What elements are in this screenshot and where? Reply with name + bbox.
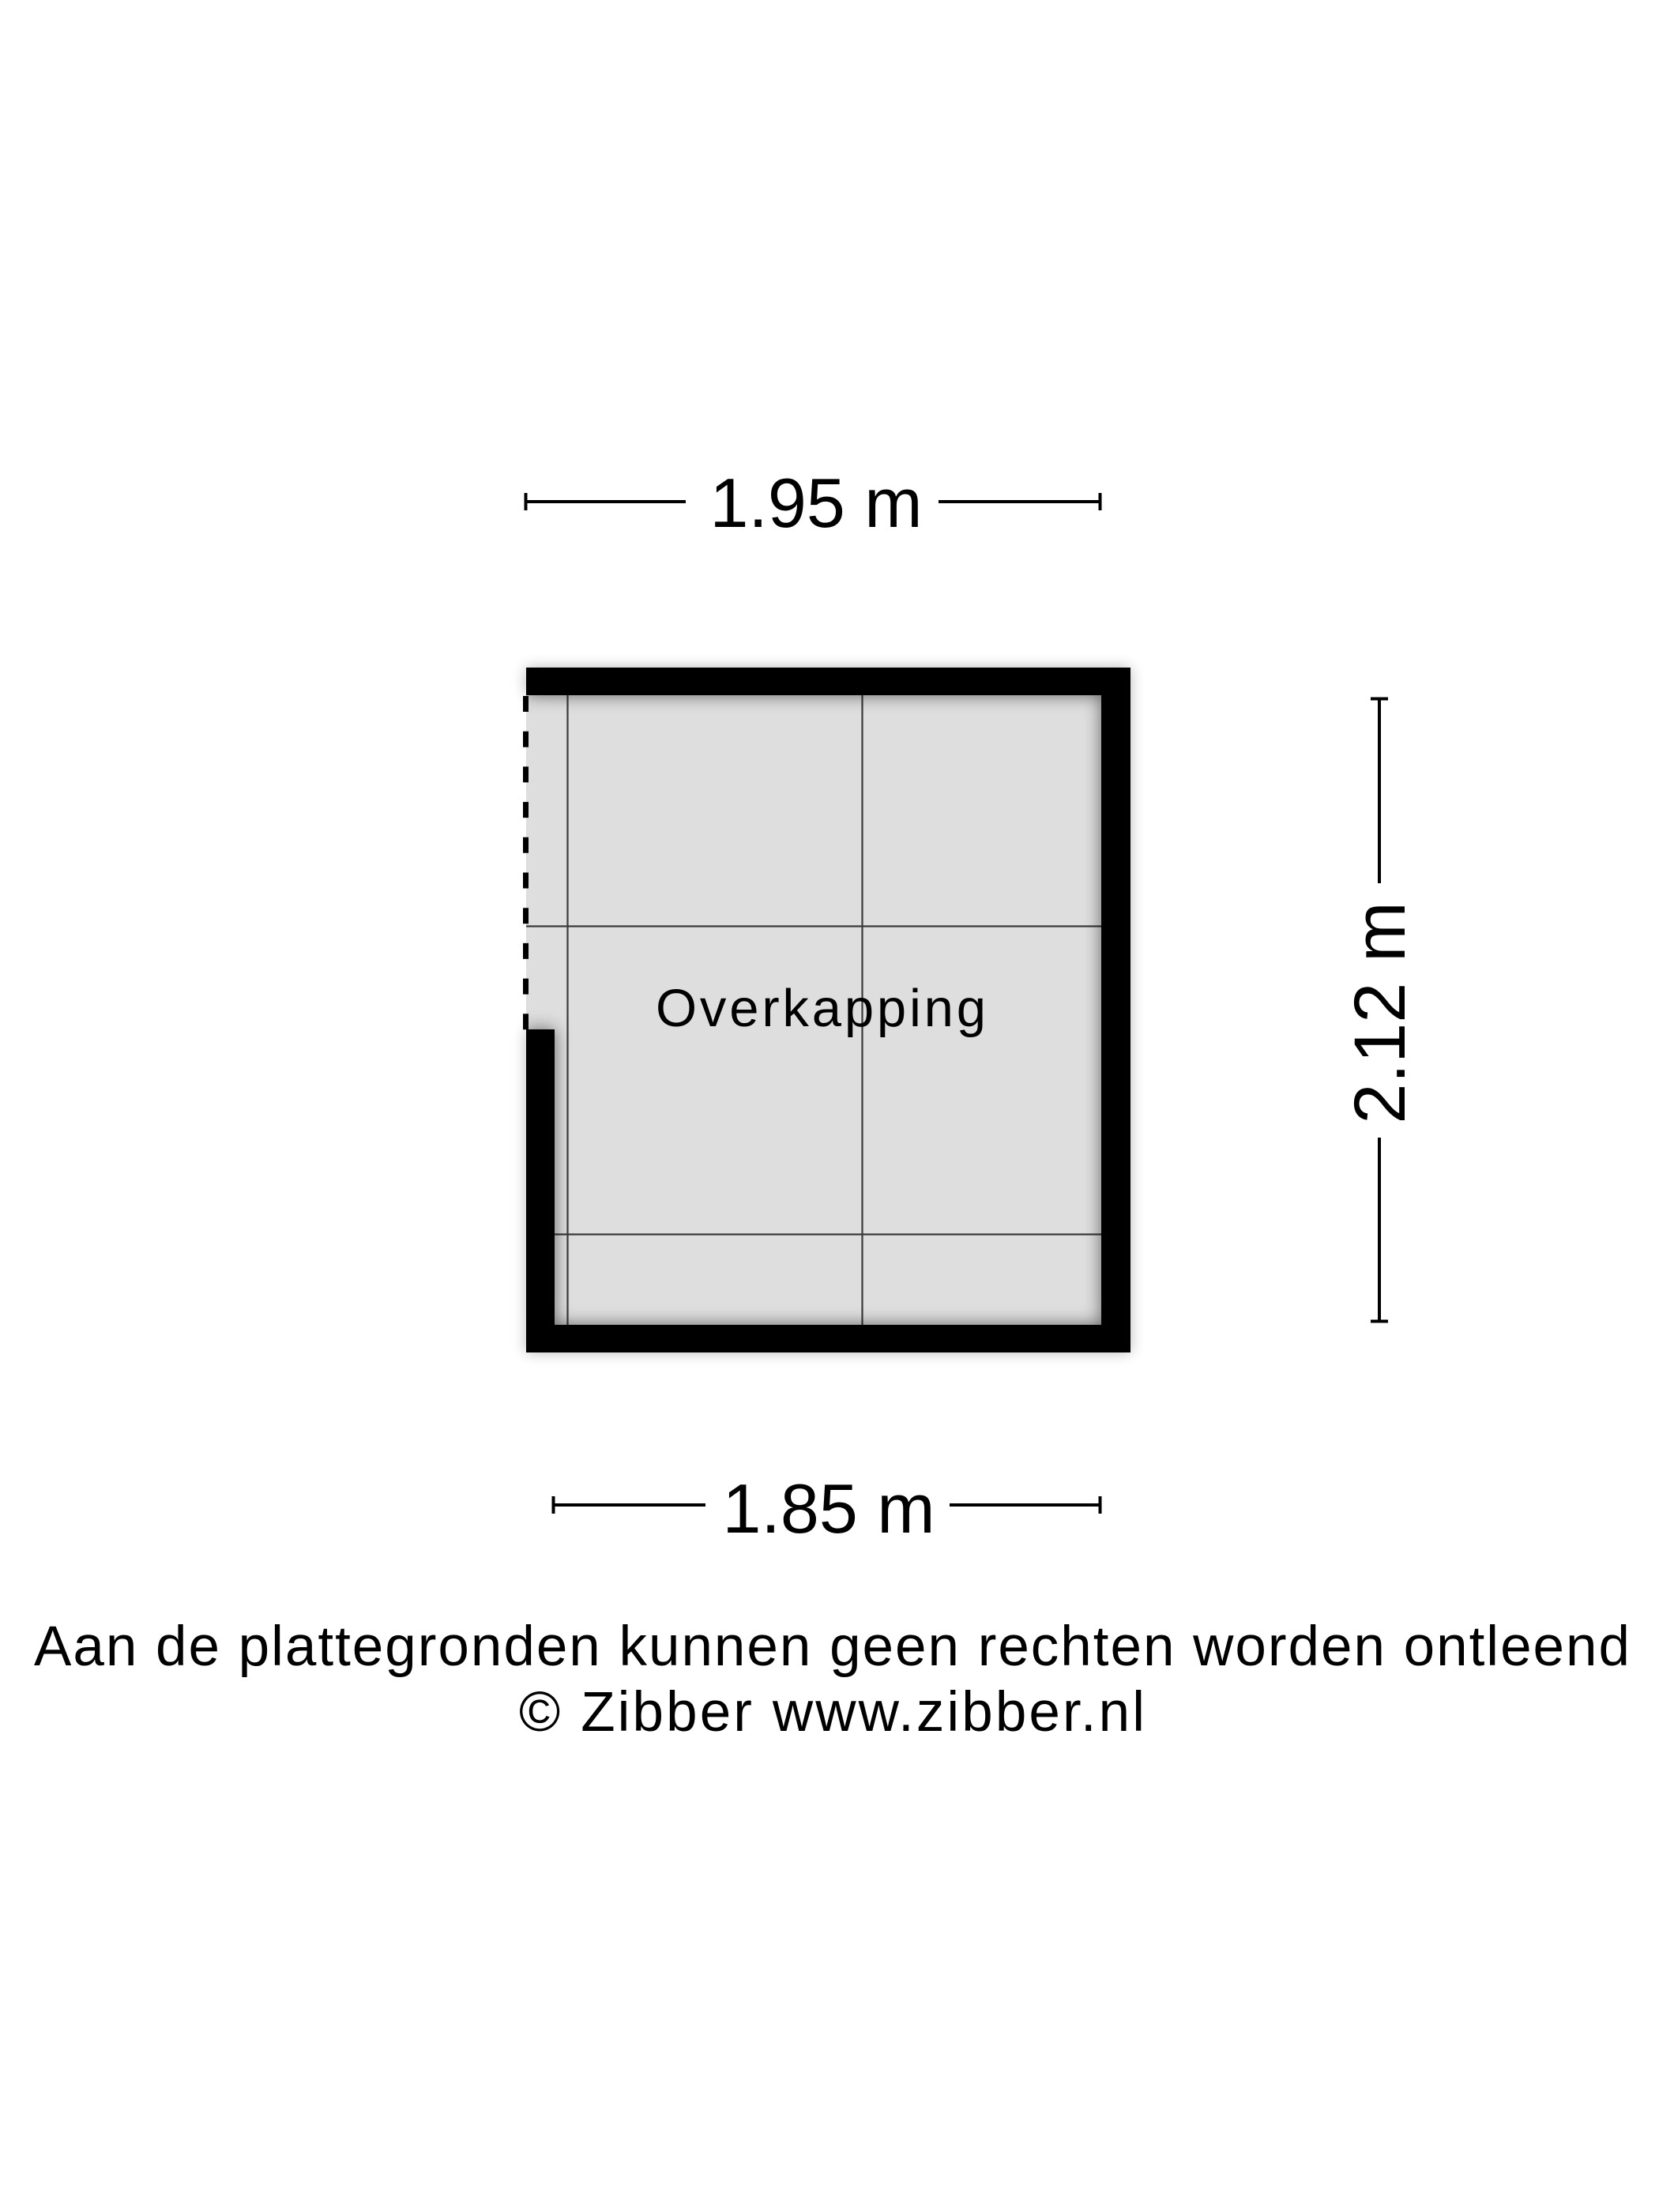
svg-text:Aan de plattegronden kunnen ge: Aan de plattegronden kunnen geen rechten… [34,1616,1630,1678]
svg-text:1.85 m: 1.85 m [722,1469,935,1548]
svg-text:© Zibber www.zibber.nl: © Zibber www.zibber.nl [519,1681,1145,1744]
svg-text:Overkapping: Overkapping [656,979,986,1038]
svg-text:1.95 m: 1.95 m [709,464,922,542]
svg-text:2.12 m: 2.12 m [1340,901,1420,1123]
